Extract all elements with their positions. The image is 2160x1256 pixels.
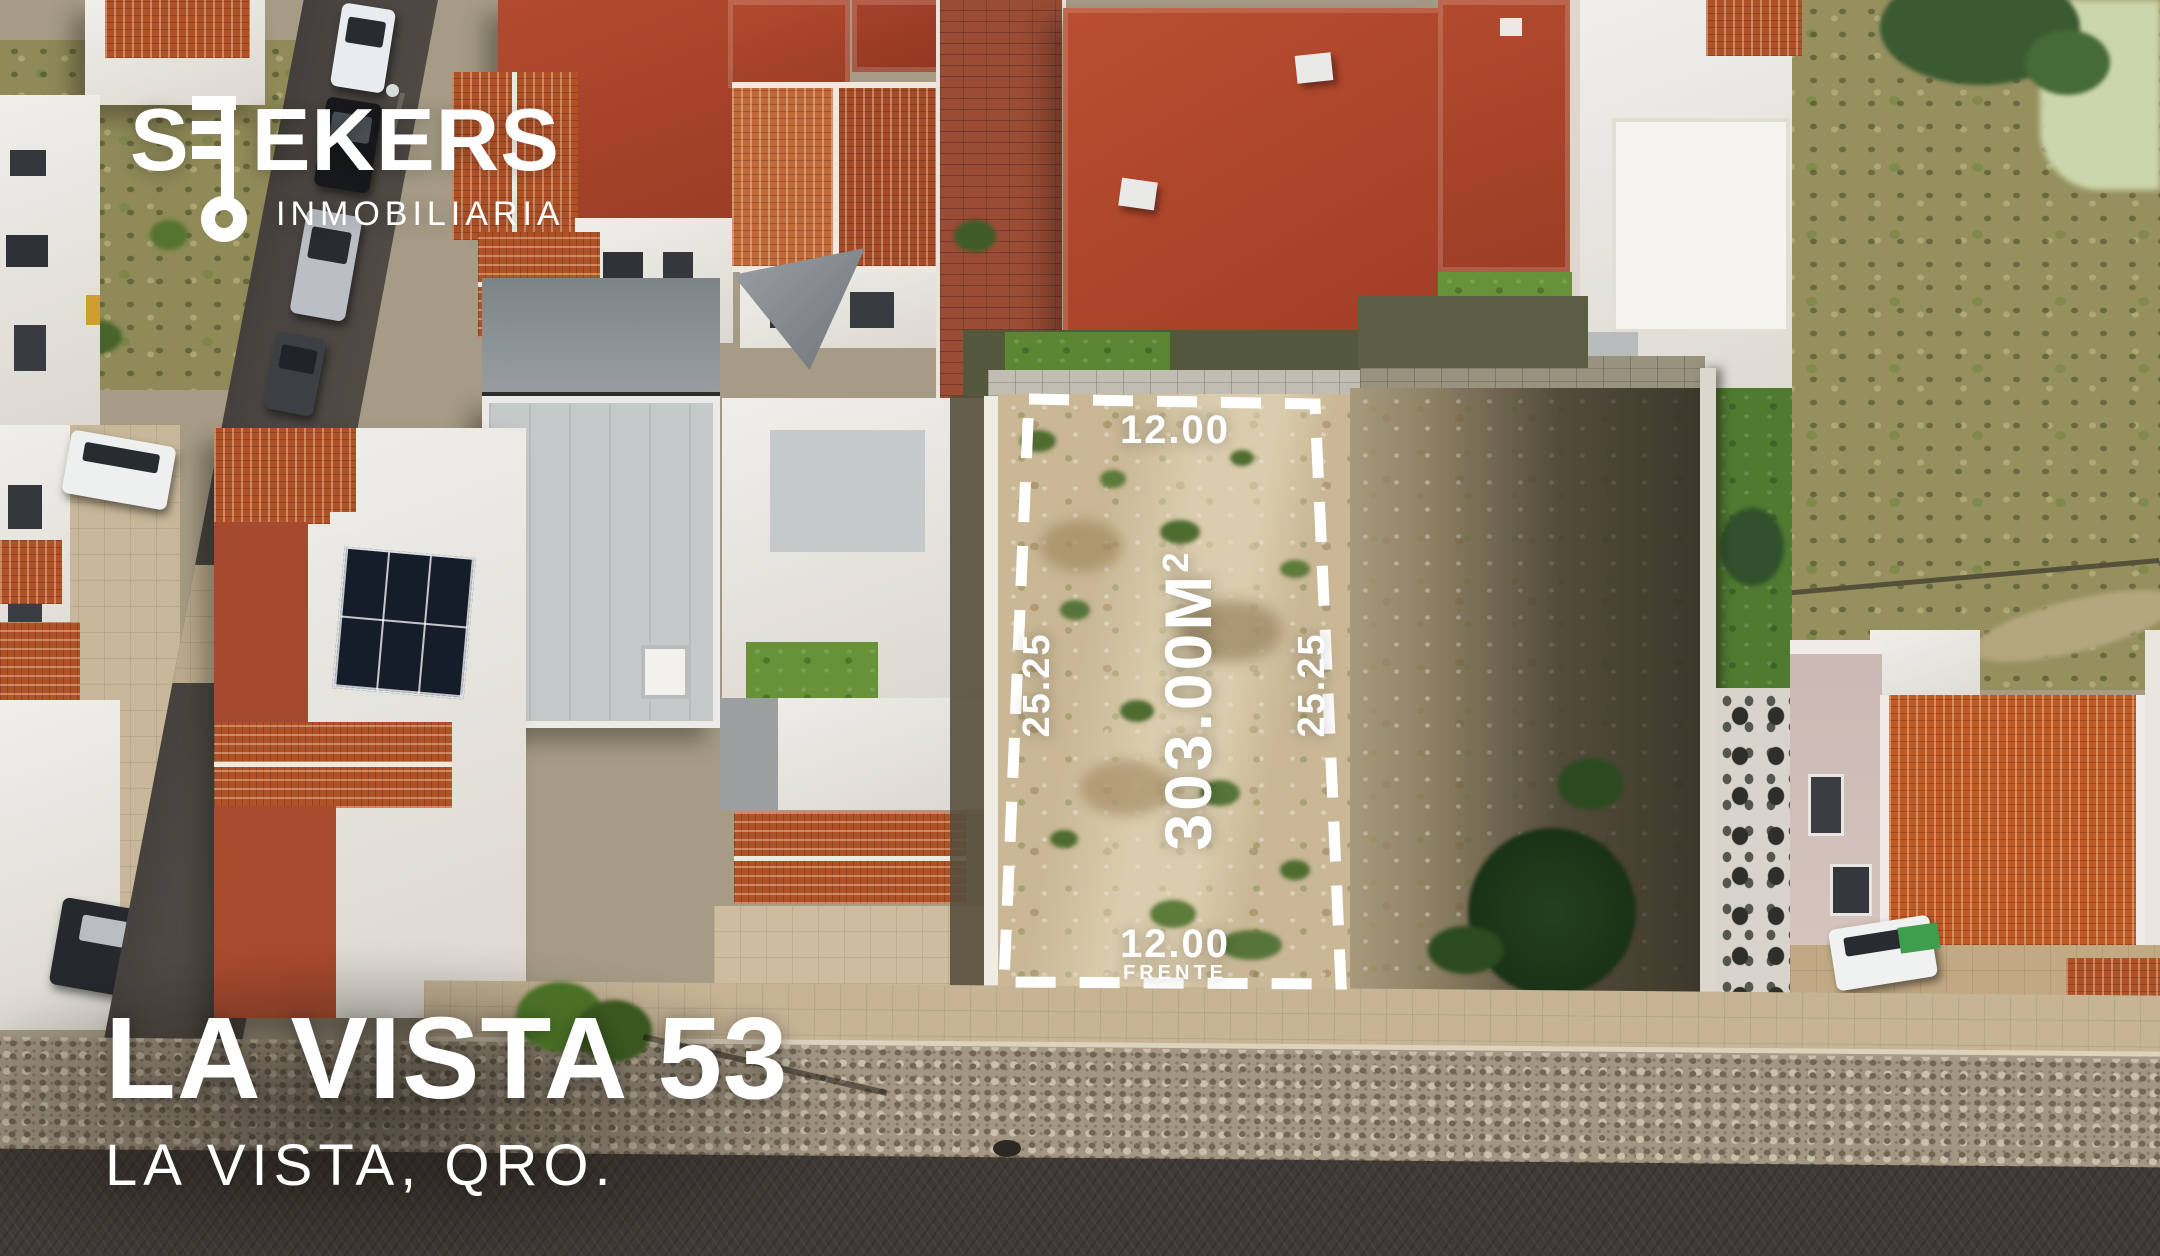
skylight [641, 645, 689, 699]
tile-roof-accent [1706, 0, 1802, 56]
gray-roof-building-upper [482, 278, 720, 398]
yellow-gate [86, 295, 100, 325]
lot-frente-caption: FRENTE [1080, 962, 1270, 985]
conifer-shrub [1468, 828, 1636, 996]
key-tooth [192, 96, 236, 110]
bush [954, 220, 996, 252]
ac-unit [1295, 52, 1334, 84]
side-garden [1712, 388, 1792, 690]
lot-area-label: 303.00M2 [1131, 530, 1221, 870]
key-tooth [192, 121, 230, 134]
dirt-path [1967, 575, 2160, 676]
brand-prefix: S [130, 96, 190, 184]
tile-roof-accent [0, 622, 80, 704]
ac-unit [330, 512, 358, 532]
key-bow [201, 196, 247, 242]
window [1808, 774, 1844, 836]
tile-roof-section [214, 428, 356, 524]
backyard-lawn-bright [1005, 332, 1170, 374]
aerial-listing-photo: 12.00 303.00M2 25.25 25.25 12.00 FRENTE … [0, 0, 2160, 1256]
lot-width-bottom-label: 12.00 [1080, 922, 1270, 967]
listing-title-block: LA VISTA 53 LA VISTA, QRO. [105, 1000, 789, 1199]
key-icon [192, 96, 250, 160]
small-lawn [746, 642, 878, 698]
tile-gable-roof-large [732, 82, 940, 272]
fence-line [1771, 558, 2160, 597]
window [10, 150, 46, 176]
shrub [1558, 758, 1624, 810]
key-tooth [192, 146, 225, 159]
roof-slope-dark [836, 88, 940, 266]
lot-side-wall-right [1700, 368, 1716, 1018]
roof-ridge [734, 856, 966, 861]
vacant-lot-shaded [1350, 388, 1712, 1016]
solar-panel-array [332, 547, 476, 700]
lot-area-superscript: 2 [1155, 549, 1196, 572]
shadow-strip [950, 396, 984, 1010]
lot-area-value: 303.00M [1151, 573, 1225, 851]
flat-red-roof [728, 0, 850, 88]
brand-wordmark: S EKERS [130, 96, 610, 184]
brand-tagline: INMOBILIARIA [276, 195, 610, 234]
ac-unit [1118, 178, 1158, 211]
backyard-shaded [1358, 296, 1588, 368]
slat-tile-roof [1880, 695, 2145, 945]
brand-logo: S EKERS INMOBILIARIA [130, 96, 610, 256]
window [14, 325, 46, 371]
roof-terrace [1612, 118, 1790, 333]
lot-depth-left-label: 25.25 [1016, 620, 1058, 750]
terracotta-flat-roof [214, 522, 308, 722]
window [1830, 864, 1872, 916]
tile-roof-accent [0, 540, 62, 604]
tile-gable-roof [214, 722, 452, 808]
chimney [1500, 18, 1522, 36]
roof-slope-light [732, 88, 836, 266]
tile-gable-roof [734, 812, 966, 904]
roof-ridge [214, 762, 452, 767]
house-left-of-lot [720, 698, 984, 810]
brand-suffix: EKERS [252, 96, 560, 184]
listing-location: LA VISTA, QRO. [105, 1132, 789, 1199]
tree [1720, 508, 1784, 586]
gray-roof-band [720, 698, 778, 810]
flat-red-roof-house [1438, 0, 1570, 272]
gray-roof-inner [770, 430, 925, 552]
car-windshield [344, 17, 386, 48]
car-windshield [278, 345, 318, 375]
lot-width-top-label: 12.00 [1080, 408, 1270, 453]
listing-title: LA VISTA 53 [105, 1000, 789, 1116]
manhole-cover [993, 1140, 1021, 1157]
shrub [1428, 926, 1504, 974]
window [6, 235, 48, 267]
house-far-left [0, 95, 100, 425]
lot-depth-right-label: 25.25 [1291, 620, 1333, 750]
tree [2025, 30, 2110, 95]
flat-red-roof-house-large [1063, 8, 1445, 338]
gravel-garden [1716, 688, 1790, 1013]
window [8, 485, 42, 529]
tile-canopy [105, 0, 250, 58]
roof-ridge [833, 88, 839, 266]
window [850, 292, 894, 328]
car-windshield [82, 442, 161, 474]
scrub-field [1770, 0, 2160, 690]
playset-green [1897, 922, 1940, 953]
